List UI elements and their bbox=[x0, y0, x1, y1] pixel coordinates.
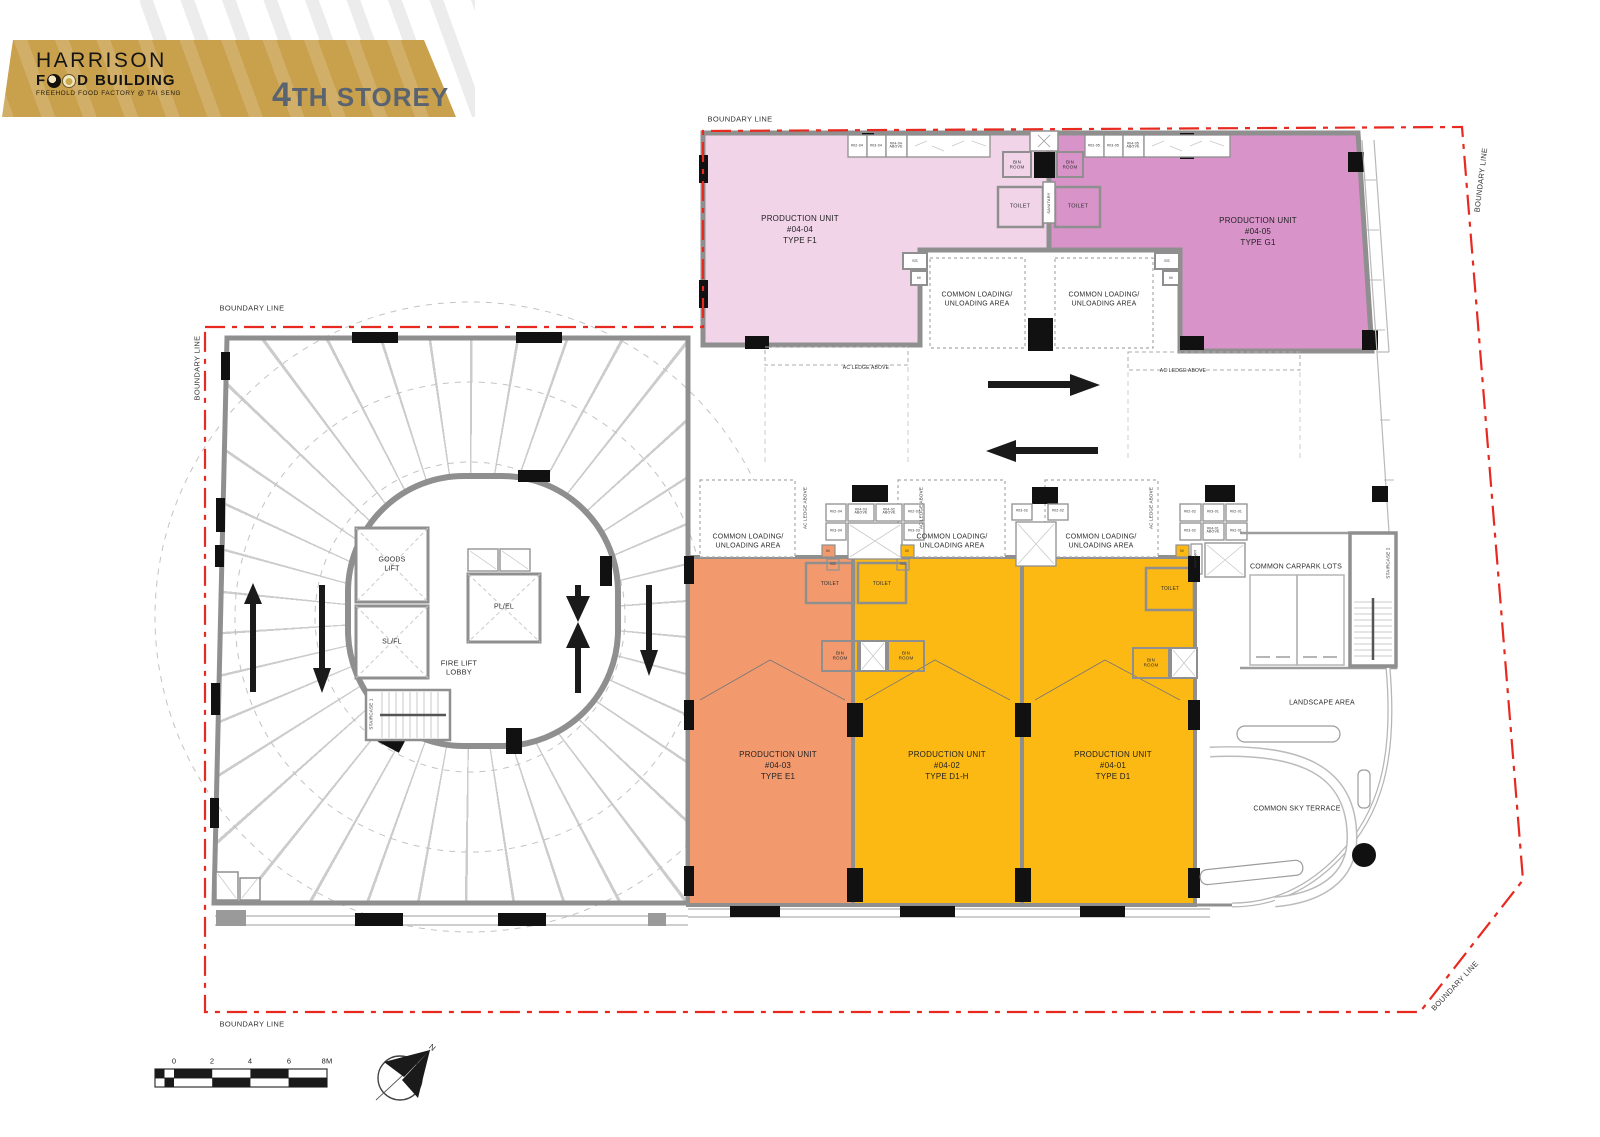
toilet-label: TOILET bbox=[1010, 204, 1030, 211]
floor-plan-drawing bbox=[0, 0, 1600, 1137]
ac-ledge-label: AC LEDGE ABOVE bbox=[920, 487, 925, 529]
shaft-label: #03-02 bbox=[1016, 509, 1028, 512]
north-compass-icon bbox=[376, 1050, 430, 1100]
loading-area-label: COMMON LOADING/ UNLOADING AREA bbox=[941, 291, 1012, 309]
toilet-label: TOILET bbox=[1161, 586, 1180, 592]
loading-area-label: COMMON LOADING/ UNLOADING AREA bbox=[1068, 291, 1139, 309]
m-label: M bbox=[1180, 549, 1184, 553]
unit-name: PRODUCTION UNIT bbox=[761, 213, 839, 224]
loading-area-label: COMMON LOADING/ UNLOADING AREA bbox=[1065, 533, 1136, 551]
unit-name: PRODUCTION UNIT bbox=[1074, 749, 1152, 760]
unit-type: TYPE G1 bbox=[1219, 238, 1297, 249]
carpark-label: COMMON CARPARK LOTS bbox=[1250, 564, 1342, 573]
shaft-label: #04-02 ABOVE bbox=[882, 509, 895, 516]
scale-bar bbox=[155, 1069, 327, 1087]
m-label: M bbox=[1169, 276, 1173, 280]
top-block bbox=[699, 131, 1394, 532]
shaft-label: #02-01 bbox=[1230, 529, 1242, 532]
ss-label: SS bbox=[1164, 259, 1170, 263]
ac-ledge-label: AC LEDGE ABOVE bbox=[1160, 368, 1206, 374]
shaft-label: #02-02 bbox=[1052, 509, 1064, 512]
floor-plan-page: HARRISON F D BUILDING FREEHOLD FOOD FACT… bbox=[0, 0, 1600, 1137]
unit-name: PRODUCTION UNIT bbox=[1219, 215, 1297, 226]
scale-tick: 0 bbox=[172, 1056, 176, 1065]
toilet-label: TOILET bbox=[873, 581, 892, 587]
sanitary-label: SANITARY bbox=[1194, 550, 1197, 569]
staircase-2-label: STAIRCASE 2 bbox=[1387, 547, 1392, 578]
shaft-label: #02-04 bbox=[830, 510, 842, 513]
boundary-label: BOUNDARY LINE bbox=[708, 114, 773, 123]
bin-room-label: BIN ROOM bbox=[1010, 160, 1025, 169]
shaft-label: #04-03 ABOVE bbox=[854, 509, 867, 516]
unit-number: #04-02 bbox=[908, 760, 986, 771]
boundary-label: BOUNDARY LINE bbox=[192, 336, 201, 401]
fire-lift-lobby-label: FIRE LIFT LOBBY bbox=[441, 659, 477, 678]
m-label: M bbox=[905, 549, 909, 553]
scale-tick: 6 bbox=[287, 1056, 291, 1065]
ac-ledge-label: AC LEDGE ABOVE bbox=[804, 487, 809, 529]
ss-label: SS bbox=[830, 562, 836, 566]
landscape-label: LANDSCAPE AREA bbox=[1289, 700, 1355, 709]
bin-room-label: BIN ROOM bbox=[1144, 658, 1159, 667]
unit-type: TYPE D1 bbox=[1074, 772, 1152, 783]
unit-name: PRODUCTION UNIT bbox=[739, 749, 817, 760]
unit-f1-label: PRODUCTION UNIT #04-04 TYPE F1 bbox=[761, 213, 839, 247]
scale-tick: 2 bbox=[210, 1056, 214, 1065]
sl-fl-label: SL/FL bbox=[382, 639, 402, 648]
unit-e1-label: PRODUCTION UNIT #04-03 TYPE E1 bbox=[739, 749, 817, 783]
unit-d1-label: PRODUCTION UNIT #04-01 TYPE D1 bbox=[1074, 749, 1152, 783]
ss-label: SS bbox=[900, 562, 906, 566]
shaft-label: #03-02 bbox=[1184, 529, 1196, 532]
sanitary-label: SANITARY bbox=[1047, 192, 1051, 213]
ss-label: SS bbox=[912, 259, 918, 263]
shaft-label: #03-05 bbox=[1107, 144, 1119, 147]
unit-name: PRODUCTION UNIT bbox=[908, 749, 986, 760]
goods-lift-label: GOODS LIFT bbox=[378, 556, 405, 574]
shaft-label: #03-03 bbox=[908, 529, 920, 532]
loading-area-label: COMMON LOADING/ UNLOADING AREA bbox=[712, 533, 783, 551]
shaft-label: #02-01 bbox=[1230, 510, 1242, 513]
sky-terrace-label: COMMON SKY TERRACE bbox=[1253, 806, 1340, 815]
m-label: M bbox=[826, 549, 830, 553]
unit-type: TYPE D1-H bbox=[908, 772, 986, 783]
unit-number: #04-05 bbox=[1219, 226, 1297, 237]
unit-type: TYPE F1 bbox=[761, 236, 839, 247]
shaft-label: #04-04 ABOVE bbox=[889, 143, 902, 150]
shaft-label: #04-05 ABOVE bbox=[1126, 143, 1139, 150]
unit-number: #04-03 bbox=[739, 760, 817, 771]
shaft-label: #02-02 bbox=[1184, 510, 1196, 513]
shaft-label: #03-04 bbox=[870, 144, 882, 147]
unit-d1h-area bbox=[853, 557, 1022, 905]
unit-e1-area bbox=[688, 557, 853, 905]
shaft-label: #04-01 ABOVE bbox=[1206, 528, 1219, 535]
boundary-label: BOUNDARY LINE bbox=[220, 303, 285, 312]
boundary-label: BOUNDARY LINE bbox=[220, 1019, 285, 1028]
shaft-label: #03-01 bbox=[1207, 510, 1219, 513]
unit-g1-label: PRODUCTION UNIT #04-05 TYPE G1 bbox=[1219, 215, 1297, 249]
unit-number: #04-04 bbox=[761, 224, 839, 235]
unit-d1h-label: PRODUCTION UNIT #04-02 TYPE D1-H bbox=[908, 749, 986, 783]
ac-ledge-label: AC LEDGE ABOVE bbox=[843, 365, 889, 371]
unit-number: #04-01 bbox=[1074, 760, 1152, 771]
scale-tick: 4 bbox=[248, 1056, 252, 1065]
bin-room-label: BIN ROOM bbox=[899, 651, 914, 660]
ac-ledge-label: AC LEDGE ABOVE bbox=[1150, 487, 1155, 529]
shaft-label: #03-04 bbox=[830, 529, 842, 532]
toilet-label: TOILET bbox=[1068, 204, 1088, 211]
pl-el-label: PL/EL bbox=[494, 604, 514, 613]
shaft-label: #02-03 bbox=[908, 510, 920, 513]
shaft-label: #02-05 bbox=[1088, 144, 1100, 147]
toilet-label: TOILET bbox=[821, 581, 840, 587]
bin-room-label: BIN ROOM bbox=[833, 651, 848, 660]
unit-type: TYPE E1 bbox=[739, 772, 817, 783]
m-label: M bbox=[917, 276, 921, 280]
loading-area-label: COMMON LOADING/ UNLOADING AREA bbox=[916, 533, 987, 551]
bin-room-label: BIN ROOM bbox=[1063, 160, 1078, 169]
scale-tick: 8M bbox=[322, 1056, 333, 1065]
shaft-label: #02-04 bbox=[851, 144, 863, 147]
staircase-1-label: STAIRCASE 1 bbox=[370, 698, 375, 729]
